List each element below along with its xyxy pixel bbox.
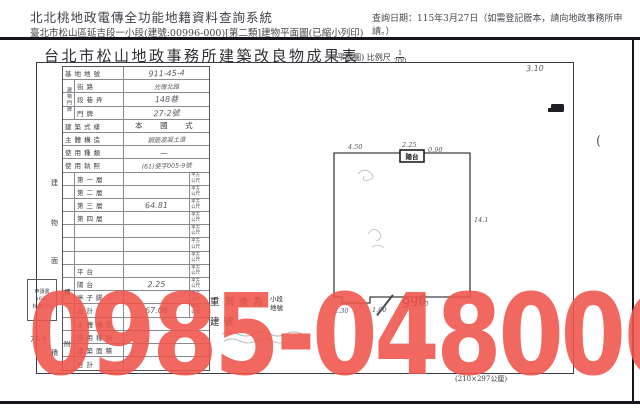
margin-handwriting: 3.10 — [526, 64, 544, 73]
vertical-label-area-char: 建 — [51, 178, 58, 188]
scan-top-edge — [0, 37, 640, 40]
unit-sqm: 平方公尺 — [189, 238, 209, 250]
table-row: 第二層平方公尺 — [63, 186, 209, 199]
table-row: 使用種類— — [63, 146, 209, 159]
unit-sqm: 平方公尺 — [189, 186, 209, 198]
table-row: 平方公尺 — [63, 238, 209, 251]
table-row: 基地地號911-45-4 — [63, 67, 209, 80]
dim-right-mid: 14.1 — [474, 216, 488, 224]
margin-paren-mark: ( — [596, 134, 601, 149]
table-row: 建築式樣本 國 式 — [63, 120, 209, 133]
scale-fraction: 1 200 — [394, 50, 406, 65]
scan-bottom-edge — [0, 401, 640, 404]
vertical-label-area-char: 面 — [51, 256, 58, 266]
table-row: 主體構造鋼筋混凝土造 — [63, 133, 209, 146]
vertical-label-area-char: 物 — [51, 218, 58, 228]
form-title: 台北市松山地政事務所建築改良物成果表 — [44, 45, 359, 66]
table-row: 第四層平方公尺 — [63, 212, 209, 225]
scale-note: (平面圖) 比例尺 1 200 — [334, 50, 406, 65]
unit-sqm: 平方公尺 — [189, 212, 209, 224]
balcony-label: 陽台 — [406, 152, 420, 161]
table-row: 平方公尺 — [63, 252, 209, 265]
ink-seal-stamp — [551, 104, 564, 112]
unit-sqm: 平方公尺 — [189, 199, 209, 211]
table-row: 第一層平方公尺 — [63, 173, 209, 186]
dim-top: 4.50 — [347, 143, 362, 151]
unit-sqm: 平方公尺 — [189, 173, 209, 185]
vertical-label-address: 建物門牌 — [63, 80, 73, 120]
watermark-number: 0985-048006 — [28, 280, 640, 392]
interior-handwriting-mark — [368, 229, 384, 248]
scale-label: (平面圖) 比例尺 — [334, 52, 391, 63]
system-title: 北北桃地政電傳全功能地籍資料查詢系統 — [30, 7, 273, 26]
dim-right-top: 0.90 — [428, 146, 442, 154]
unit-sqm: 平方公尺 — [189, 225, 209, 237]
unit-sqm: 平方公尺 — [189, 252, 209, 264]
table-row: 平方公尺 — [63, 225, 209, 238]
table-row: 門牌27-2號 — [63, 107, 209, 120]
table-row: 使用執照(61)使字005-9號 — [63, 159, 209, 172]
query-date: 查詢日期：115年3月27日（如需登記謄本，請向地政事務所申請。） — [372, 11, 640, 37]
table-row: 第三層64.81平方公尺 — [63, 199, 209, 212]
table-row: 街路光復北路 — [63, 80, 209, 93]
interior-handwriting-mark — [358, 170, 373, 180]
table-row: 段巷弄148巷 — [63, 93, 209, 106]
dim-top-balcony: 2.25 — [401, 142, 416, 149]
